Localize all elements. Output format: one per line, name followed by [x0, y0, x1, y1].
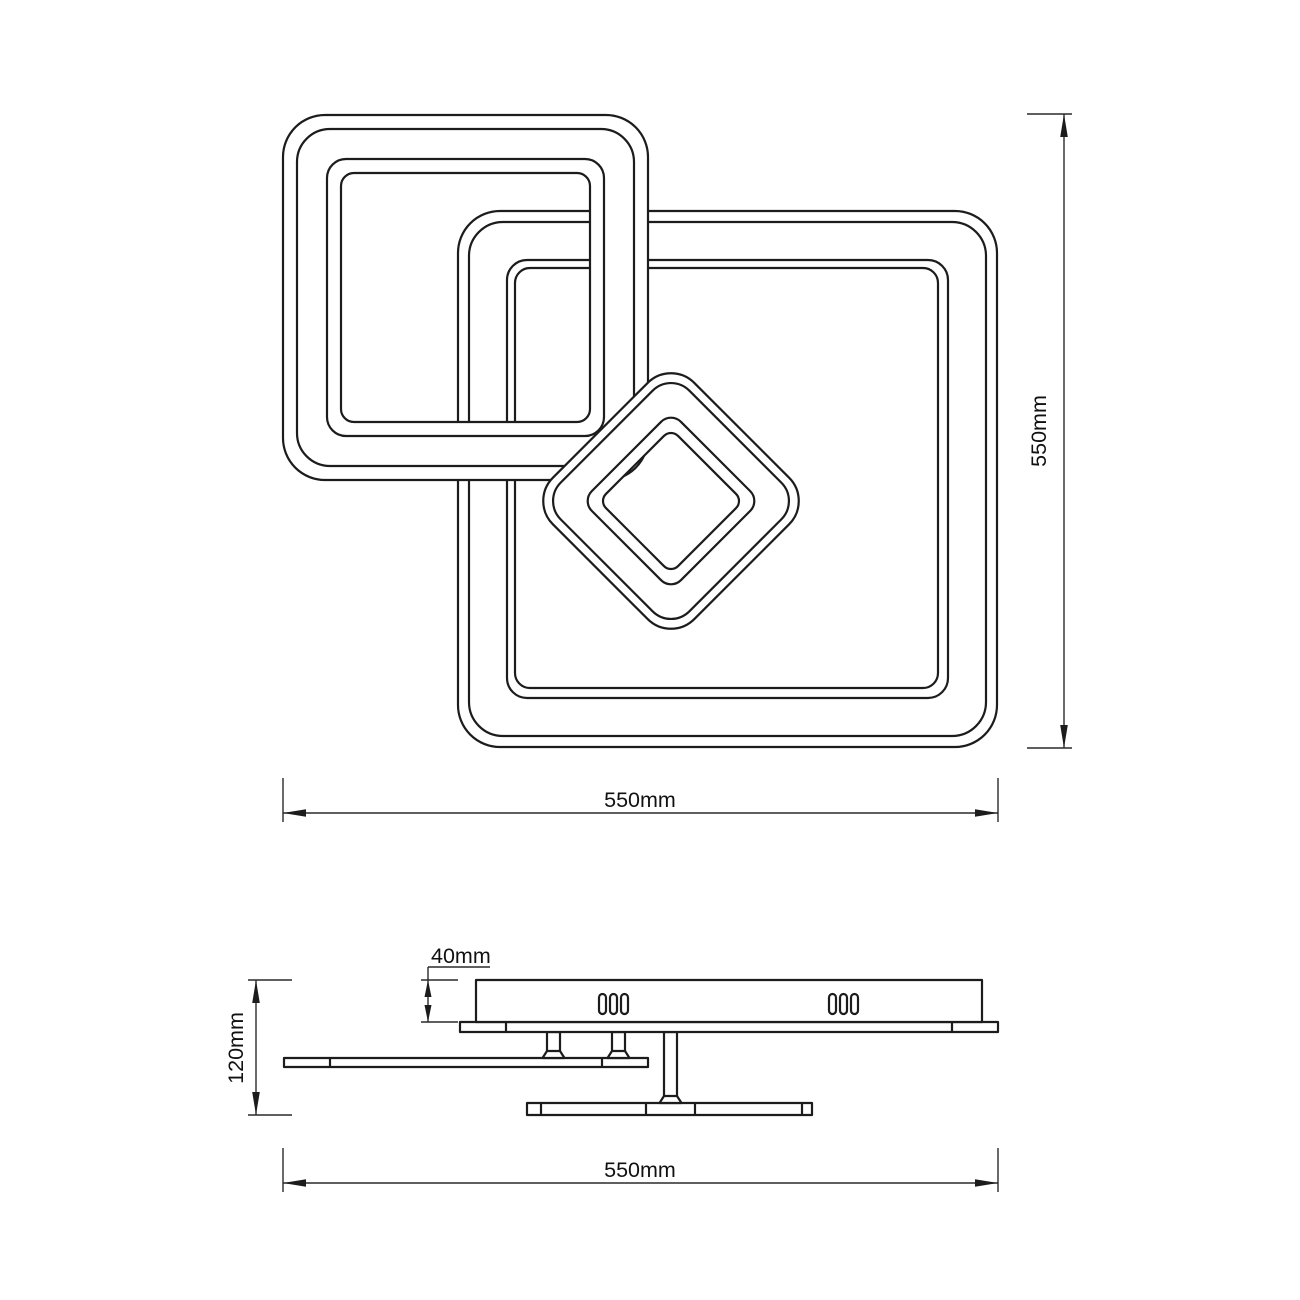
arm-bar: [527, 1103, 812, 1115]
dim-top-view-height: 550mm: [1027, 114, 1072, 748]
technical-drawing-canvas: 550mm 550mm: [0, 0, 1300, 1300]
technical-drawing-page: 550mm 550mm: [0, 0, 1300, 1300]
arrowhead-down: [252, 1092, 260, 1115]
dim-label-side-width: 550mm: [604, 1158, 676, 1182]
stem-foot-small-2: [608, 1051, 630, 1058]
arrowhead-up: [1060, 114, 1068, 137]
arm-bar: [284, 1058, 648, 1067]
body-box: [476, 980, 982, 1022]
side-arm-left: [284, 1058, 648, 1067]
arrowhead-down: [1060, 725, 1068, 748]
dim-label-top-height: 550mm: [1027, 395, 1051, 467]
support-stem-tall: [664, 1032, 677, 1098]
side-view: 40mm 120mm 550mm: [224, 944, 998, 1192]
dim-label-top-width: 550mm: [604, 788, 676, 812]
arrowhead-up: [252, 980, 260, 1003]
dim-label-body-thickness: 40mm: [431, 944, 491, 968]
arrowhead-right: [975, 1179, 998, 1187]
support-stem-small-2: [612, 1032, 625, 1053]
top-view: 550mm 550mm: [283, 114, 1072, 822]
mounting-body: [476, 980, 982, 1022]
arrowhead-right: [975, 809, 998, 817]
plate-bar: [460, 1022, 998, 1032]
dim-total-height: 120mm: [224, 980, 292, 1115]
arrowhead-down: [425, 1005, 432, 1022]
dim-side-view-width: 550mm: [283, 1148, 998, 1192]
cover-plate: [460, 1022, 998, 1032]
stem-foot-tall: [660, 1096, 682, 1103]
diamond-frame: [530, 360, 813, 643]
arrowhead-left: [283, 809, 306, 817]
stem-foot-small-1: [543, 1051, 565, 1058]
dim-top-view-width: 550mm: [283, 778, 998, 822]
side-arm-bottom: [527, 1103, 812, 1115]
arrowhead-up: [425, 980, 432, 997]
diamond-ring-fill: [530, 360, 813, 643]
arrowhead-left: [283, 1179, 306, 1187]
dim-label-total-height: 120mm: [224, 1012, 248, 1084]
support-stem-small-1: [547, 1032, 560, 1053]
